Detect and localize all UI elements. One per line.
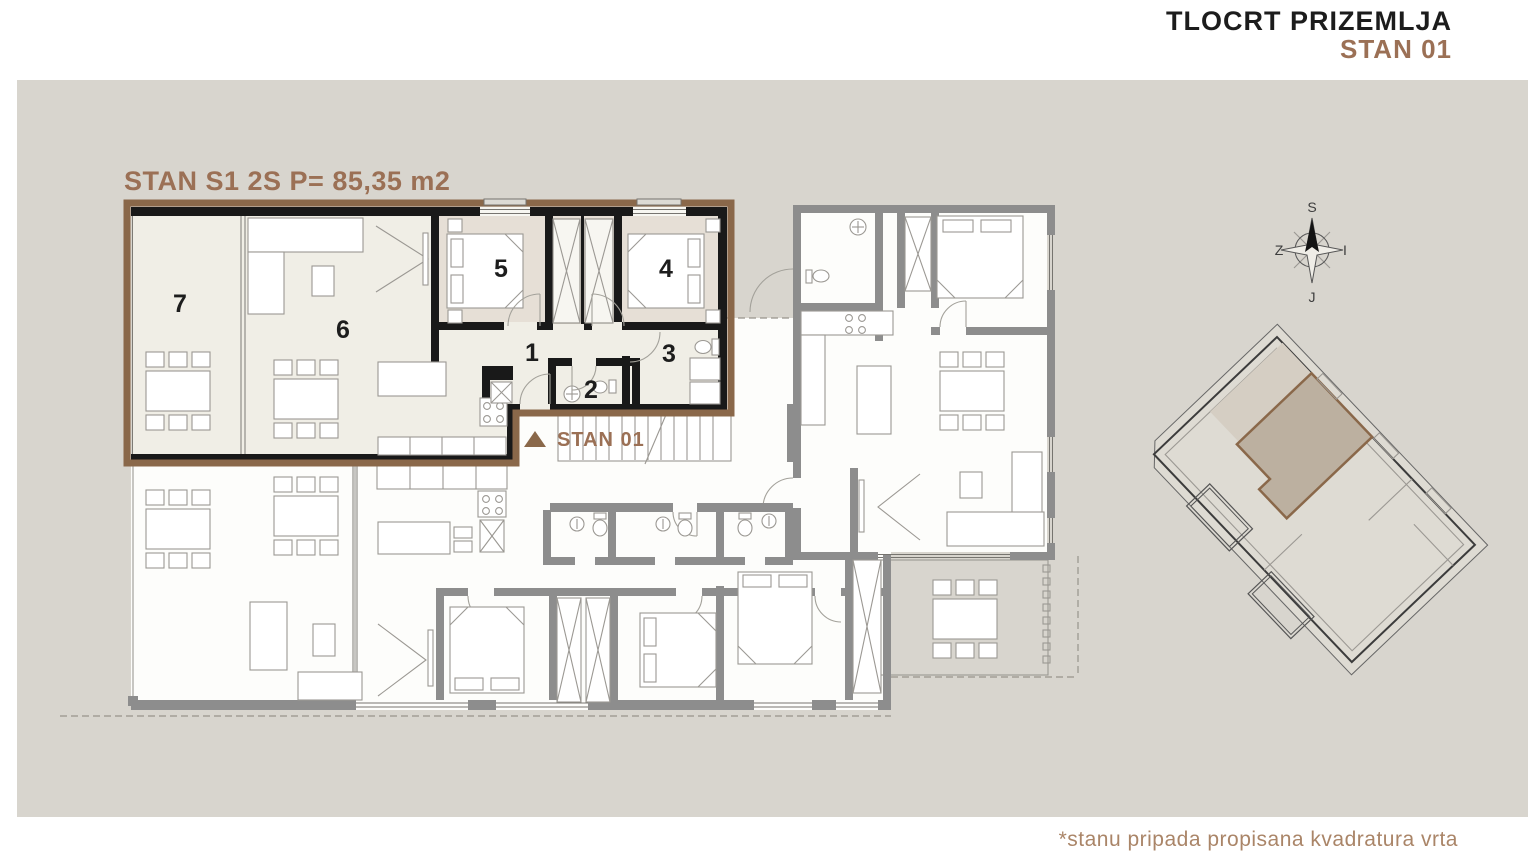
- compass-west-label: Z: [1275, 242, 1284, 258]
- room-number-2: 2: [584, 376, 598, 404]
- terrace-dining-set: [146, 352, 210, 430]
- shower-icon: [690, 358, 720, 380]
- apartment-label: STAN S1 2S P= 85,35 m2: [124, 166, 450, 196]
- room-number-1: 1: [525, 339, 539, 367]
- dining-set: [274, 477, 338, 555]
- bed-icon: [450, 607, 524, 693]
- compass-south-label: J: [1309, 289, 1316, 305]
- kitchen-counter: [377, 465, 507, 489]
- window-sill: [484, 199, 526, 205]
- kitchen-island: [378, 362, 446, 396]
- coffee-table: [312, 266, 334, 296]
- toilet-icon: [695, 339, 719, 355]
- terrace-dining-set: [146, 490, 210, 568]
- compass-north-label: S: [1307, 199, 1316, 215]
- toilet-icon: [678, 513, 692, 536]
- coffee-table: [960, 472, 982, 498]
- room-number-7: 7: [173, 290, 187, 318]
- bed-icon: [447, 219, 523, 323]
- room-number-5: 5: [494, 255, 508, 283]
- bed-icon: [738, 572, 812, 664]
- coffee-table: [313, 624, 335, 656]
- footnote: *stanu pripada propisana kvadratura vrta: [1059, 828, 1458, 851]
- floor-plan-canvas: 1 2 3 4 5 6 7 STAN 01 STAN S1 2S P= 85,3…: [0, 0, 1528, 861]
- toilet-icon: [593, 513, 607, 536]
- room-number-6: 6: [336, 316, 350, 344]
- wardrobe-icon: [557, 598, 581, 702]
- toilet-icon: [738, 513, 752, 536]
- page-subtitle: STAN 01: [1340, 34, 1452, 64]
- kitchen-island: [857, 366, 891, 434]
- dining-set: [274, 360, 338, 438]
- bed-icon: [640, 613, 716, 687]
- tv-icon: [859, 480, 864, 532]
- toilet-icon: [806, 270, 829, 283]
- entrance-marker-label: STAN 01: [557, 429, 645, 451]
- room-number-4: 4: [659, 255, 673, 283]
- wardrobe-icon: [553, 219, 580, 323]
- compass-east-label: I: [1343, 242, 1347, 258]
- wardrobe-icon: [491, 382, 512, 403]
- wardrobe-icon: [585, 219, 613, 323]
- tv-icon: [428, 630, 433, 686]
- wardrobe-icon: [480, 520, 504, 552]
- bed-icon: [937, 216, 1023, 298]
- washer-icon: [690, 382, 720, 404]
- dining-set: [940, 352, 1004, 430]
- room-number-3: 3: [662, 340, 676, 368]
- wardrobe-icon: [853, 560, 881, 693]
- wardrobe-icon: [586, 598, 610, 702]
- kitchen-island: [378, 522, 450, 554]
- floor-plan-page: 1 2 3 4 5 6 7 STAN 01 STAN S1 2S P= 85,3…: [0, 0, 1528, 861]
- wardrobe-icon: [905, 217, 931, 291]
- page-title: TLOCRT PRIZEMLJA: [1166, 6, 1452, 36]
- window-sill: [637, 199, 681, 205]
- tv-icon: [423, 233, 428, 285]
- terrace-dining-set: [933, 580, 997, 658]
